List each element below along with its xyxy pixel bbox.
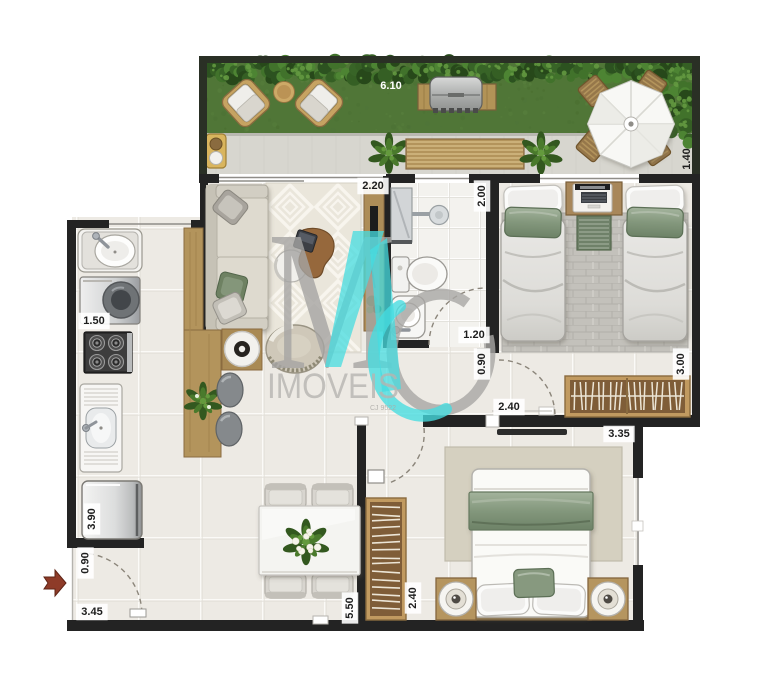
svg-text:3.90: 3.90 bbox=[86, 508, 98, 529]
svg-text:2.40: 2.40 bbox=[407, 587, 419, 608]
svg-text:3.45: 3.45 bbox=[81, 606, 102, 618]
svg-text:1.40: 1.40 bbox=[681, 148, 693, 169]
svg-text:0.90: 0.90 bbox=[476, 353, 488, 374]
svg-text:5.50: 5.50 bbox=[344, 597, 356, 618]
svg-text:1.20: 1.20 bbox=[463, 329, 484, 341]
svg-text:3.35: 3.35 bbox=[608, 428, 629, 440]
svg-text:IMOVEIS: IMOVEIS bbox=[267, 367, 399, 406]
svg-text:1.50: 1.50 bbox=[83, 315, 104, 327]
svg-text:CJ 9522: CJ 9522 bbox=[370, 405, 396, 412]
svg-text:2.20: 2.20 bbox=[362, 180, 383, 192]
svg-text:6.10: 6.10 bbox=[380, 80, 401, 92]
svg-text:0.90: 0.90 bbox=[80, 552, 92, 573]
svg-text:3.00: 3.00 bbox=[675, 353, 687, 374]
svg-text:2.00: 2.00 bbox=[476, 185, 488, 206]
svg-text:2.40: 2.40 bbox=[498, 401, 519, 413]
